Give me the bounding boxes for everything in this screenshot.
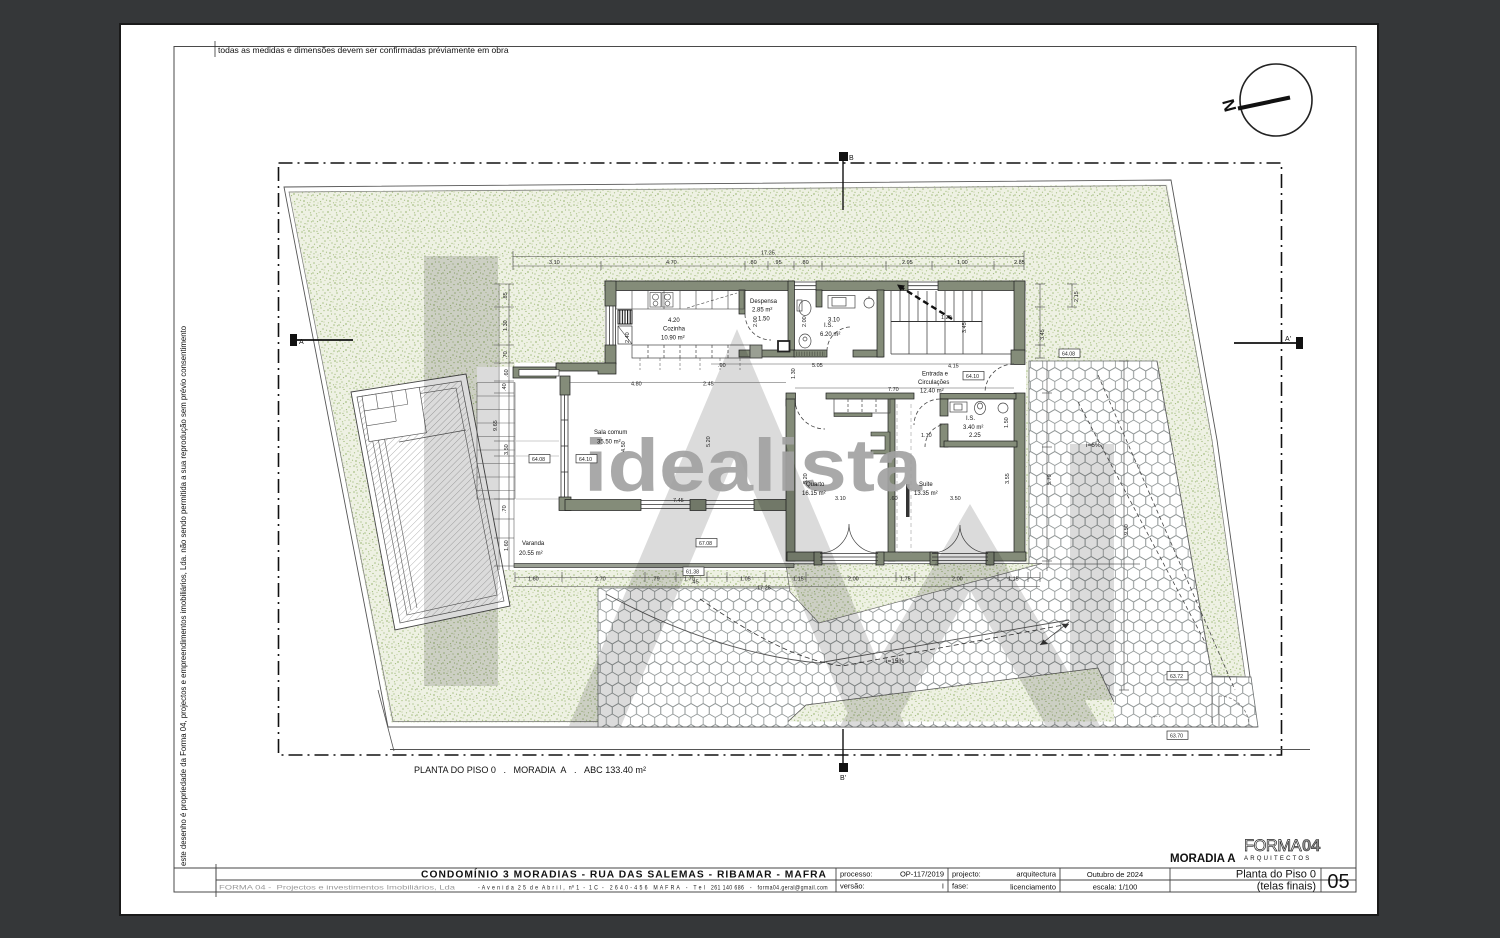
svg-text:1.60: 1.60 xyxy=(504,540,510,551)
svg-text:4.20: 4.20 xyxy=(668,318,680,324)
svg-text:2.45: 2.45 xyxy=(703,382,714,388)
svg-text:12.40 m²: 12.40 m² xyxy=(920,389,944,395)
svg-text:3.55: 3.55 xyxy=(1005,473,1011,484)
svg-text:2.70: 2.70 xyxy=(595,577,606,583)
svg-text:.80: .80 xyxy=(749,260,757,266)
svg-text:35.50 m²: 35.50 m² xyxy=(597,440,621,446)
svg-text:20.55 m²: 20.55 m² xyxy=(519,551,543,557)
svg-text:versão:: versão: xyxy=(840,882,865,891)
svg-text:1.05: 1.05 xyxy=(740,577,751,583)
svg-text:1.15: 1.15 xyxy=(793,577,804,583)
svg-text:2.40: 2.40 xyxy=(625,332,631,343)
svg-text:4.70: 4.70 xyxy=(666,260,677,266)
svg-text:A': A' xyxy=(1285,336,1291,343)
svg-text:B': B' xyxy=(840,775,846,782)
svg-text:Outubro de 2024: Outubro de 2024 xyxy=(1087,870,1143,879)
svg-text:1.10: 1.10 xyxy=(921,433,932,439)
svg-text:1.20: 1.20 xyxy=(941,315,952,321)
svg-text:63.70: 63.70 xyxy=(1170,734,1183,740)
svg-text:5.20: 5.20 xyxy=(706,436,712,447)
svg-text:13.35 m²: 13.35 m² xyxy=(914,491,938,497)
svg-text:arquitectura: arquitectura xyxy=(1016,870,1056,879)
svg-text:05: 05 xyxy=(1327,871,1349,893)
svg-text:04: 04 xyxy=(1302,837,1321,855)
svg-text:5.70: 5.70 xyxy=(1047,474,1053,485)
svg-text:3.10: 3.10 xyxy=(835,496,846,502)
svg-text:PLANTA DO PISO 0 . MORADIA: PLANTA DO PISO 0 . MORADIA A . ABC 133.4… xyxy=(414,765,647,776)
svg-text:1.75: 1.75 xyxy=(900,577,911,583)
svg-text:10.90 m²: 10.90 m² xyxy=(661,336,685,342)
svg-text:1.60: 1.60 xyxy=(528,577,539,583)
svg-text:3.45: 3.45 xyxy=(962,322,968,333)
svg-text:2.00: 2.00 xyxy=(802,316,808,327)
svg-text:(telas finais): (telas finais) xyxy=(1257,881,1316,893)
svg-text:17.25: 17.25 xyxy=(757,586,771,592)
svg-text:Circulações: Circulações xyxy=(918,380,949,386)
svg-text:3.10: 3.10 xyxy=(549,260,560,266)
svg-text:.79: .79 xyxy=(652,577,660,583)
svg-text:2.15: 2.15 xyxy=(1074,291,1080,302)
svg-text:FORMA 04 - Projectos e invest: FORMA 04 - Projectos e investimentos Imo… xyxy=(219,885,455,892)
svg-text:4.50: 4.50 xyxy=(621,441,627,452)
svg-text:processo:: processo: xyxy=(840,870,873,879)
svg-text:3.45: 3.45 xyxy=(1040,329,1046,340)
svg-text:2.85: 2.85 xyxy=(1014,260,1025,266)
svg-text:17.25: 17.25 xyxy=(761,251,775,257)
svg-text:.70: .70 xyxy=(502,505,508,513)
svg-text:Suite: Suite xyxy=(919,482,933,488)
svg-text:este desenho é propriedade da: este desenho é propriedade da Forma 04, … xyxy=(179,325,188,866)
svg-text:1.00: 1.00 xyxy=(957,260,968,266)
svg-text:64.10: 64.10 xyxy=(966,374,979,380)
svg-text:- A v e n i d a 2 5 d e A b: - A v e n i d a 2 5 d e A b r i l , nº 1… xyxy=(478,885,828,892)
svg-text:64.10: 64.10 xyxy=(579,457,592,463)
svg-text:5.05: 5.05 xyxy=(812,363,823,369)
svg-text:1.15: 1.15 xyxy=(1008,577,1019,583)
svg-text:.85: .85 xyxy=(503,292,509,300)
svg-text:3.40 m²: 3.40 m² xyxy=(963,425,983,431)
svg-text:.70: .70 xyxy=(503,351,509,359)
svg-text:2.85 m²: 2.85 m² xyxy=(752,308,772,314)
svg-text:9.65: 9.65 xyxy=(493,420,499,431)
svg-text:4.80: 4.80 xyxy=(631,382,642,388)
svg-text:FORMA: FORMA xyxy=(1244,837,1302,855)
svg-text:Sala comum: Sala comum xyxy=(594,430,627,436)
svg-text:3.50: 3.50 xyxy=(504,444,510,455)
svg-text:5.20: 5.20 xyxy=(803,473,809,484)
svg-text:2.95: 2.95 xyxy=(902,260,913,266)
svg-text:2.25: 2.25 xyxy=(969,433,981,439)
svg-text:←·: ←· xyxy=(1152,713,1161,720)
svg-text:ARQUITECTOS: ARQUITECTOS xyxy=(1244,856,1311,862)
svg-text:6.20 m²: 6.20 m² xyxy=(820,332,840,338)
svg-text:licenciamento: licenciamento xyxy=(1010,883,1056,892)
svg-text:64.08: 64.08 xyxy=(532,457,545,463)
svg-text:Planta do Piso 0: Planta do Piso 0 xyxy=(1236,869,1316,881)
svg-text:1.30: 1.30 xyxy=(791,368,797,379)
svg-text:Cozinha: Cozinha xyxy=(663,327,686,333)
svg-text:Varanda: Varanda xyxy=(522,541,545,547)
svg-text:CONDOMÍNIO 3 MORADIAS - RUA DA: CONDOMÍNIO 3 MORADIAS - RUA DAS SALEMAS … xyxy=(421,868,827,881)
svg-text:fase:: fase: xyxy=(952,882,968,891)
svg-text:2.00: 2.00 xyxy=(753,316,759,327)
svg-text:2.00: 2.00 xyxy=(848,577,859,583)
svg-text:B: B xyxy=(849,155,854,162)
svg-text:todas as medidas e dimensões d: todas as medidas e dimensões devem ser c… xyxy=(218,45,509,55)
svg-text:3.50: 3.50 xyxy=(950,496,961,502)
svg-text:64.08: 64.08 xyxy=(1062,352,1075,358)
svg-text:7.70: 7.70 xyxy=(888,387,899,393)
svg-text:.90: .90 xyxy=(718,363,726,369)
svg-text:1.50: 1.50 xyxy=(758,317,770,323)
svg-text:I: I xyxy=(942,882,944,891)
svg-text:.60: .60 xyxy=(504,369,510,377)
svg-text:.60: .60 xyxy=(890,496,898,502)
svg-text:Despensa: Despensa xyxy=(750,299,778,305)
svg-text:1.50: 1.50 xyxy=(1004,417,1010,428)
svg-text:1.30: 1.30 xyxy=(503,320,509,331)
svg-text:9.50: 9.50 xyxy=(1124,524,1130,535)
svg-text:67.08: 67.08 xyxy=(699,541,712,547)
svg-text:OP-117/2019: OP-117/2019 xyxy=(900,870,944,879)
svg-text:63.72: 63.72 xyxy=(1170,674,1183,680)
svg-text:7.45: 7.45 xyxy=(673,498,684,504)
svg-text:.95: .95 xyxy=(774,260,782,266)
svg-text:16.15 m²: 16.15 m² xyxy=(802,491,826,497)
svg-text:MORADIA A: MORADIA A xyxy=(1170,853,1236,865)
svg-text:2.00: 2.00 xyxy=(952,577,963,583)
svg-text:61.38: 61.38 xyxy=(686,570,699,576)
svg-text:I.S.: I.S. xyxy=(824,323,833,329)
svg-text:.40: .40 xyxy=(502,383,508,391)
svg-text:projecto:: projecto: xyxy=(952,870,981,879)
svg-text:.80: .80 xyxy=(801,260,809,266)
svg-text:Entrada e: Entrada e xyxy=(922,372,949,378)
svg-text:idealista: idealista xyxy=(584,424,923,507)
svg-text:I.S.: I.S. xyxy=(966,416,975,422)
svg-text:4.15: 4.15 xyxy=(948,364,959,370)
svg-text:.45: .45 xyxy=(691,580,699,586)
svg-text:escala: 1/100: escala: 1/100 xyxy=(1093,883,1138,892)
